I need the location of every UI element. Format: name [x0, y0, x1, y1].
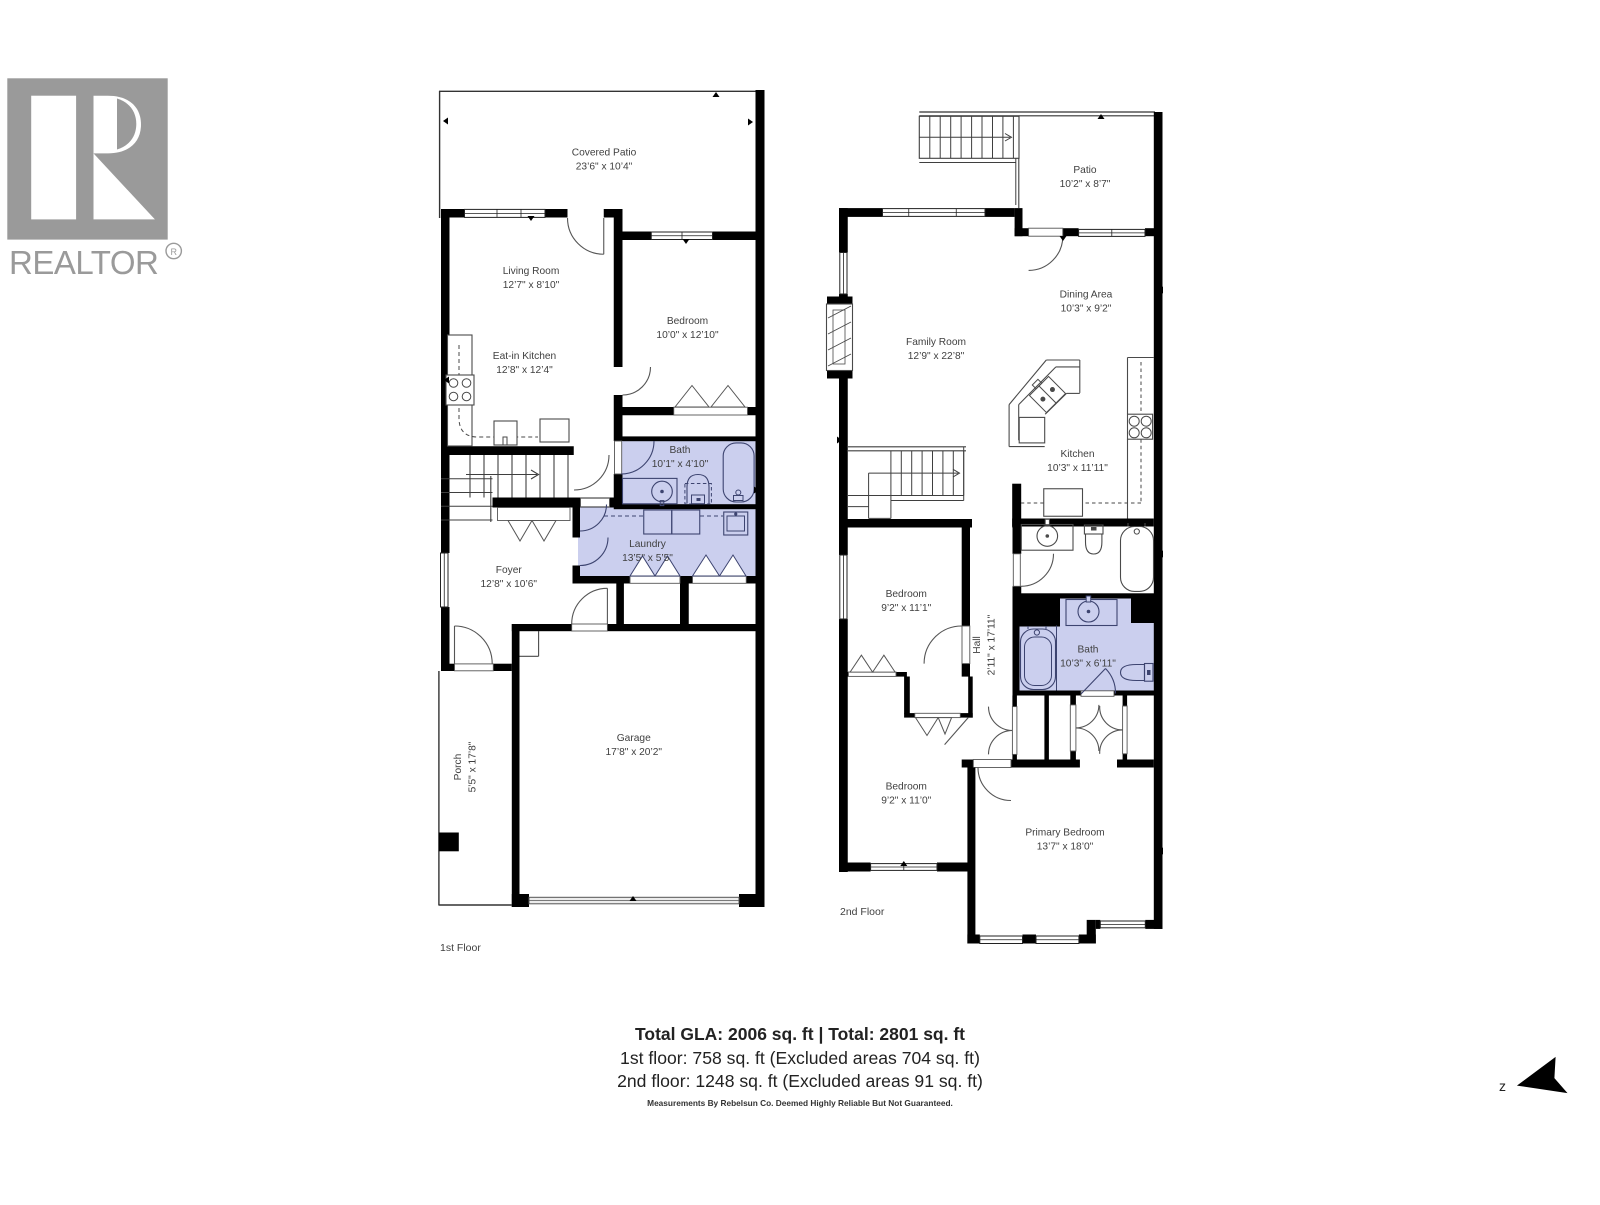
svg-text:2nd Floor: 2nd Floor: [840, 906, 885, 918]
svg-text:23’6" x 10’4": 23’6" x 10’4": [576, 161, 633, 172]
svg-text:2’11" x 17’11": 2’11" x 17’11": [987, 614, 998, 675]
svg-text:Family Room: Family Room: [906, 337, 966, 348]
svg-text:17’8" x 20’2": 17’8" x 20’2": [605, 747, 662, 758]
svg-text:10’2" x 8’7": 10’2" x 8’7": [1060, 179, 1111, 190]
svg-text:9’2" x 11’1": 9’2" x 11’1": [881, 603, 931, 614]
svg-text:10’3" x 9’2": 10’3" x 9’2": [1061, 303, 1112, 314]
svg-text:REALTOR: REALTOR: [9, 244, 158, 281]
svg-text:Eat-in Kitchen: Eat-in Kitchen: [493, 351, 556, 362]
svg-text:10’0" x 12’10": 10’0" x 12’10": [656, 330, 719, 341]
svg-text:Kitchen: Kitchen: [1061, 449, 1095, 460]
svg-text:10’3" x 11’11": 10’3" x 11’11": [1047, 463, 1108, 474]
svg-text:12’8" x 10’6": 12’8" x 10’6": [480, 579, 537, 590]
svg-text:Garage: Garage: [617, 733, 651, 744]
svg-text:Bedroom: Bedroom: [886, 589, 927, 600]
svg-text:9’2" x 11’0": 9’2" x 11’0": [881, 795, 931, 806]
svg-text:Living Room: Living Room: [503, 266, 560, 277]
svg-text:Foyer: Foyer: [496, 565, 523, 576]
svg-text:10’1" x 4’10": 10’1" x 4’10": [652, 459, 709, 470]
svg-text:z: z: [1499, 1078, 1506, 1094]
svg-text:Measurements By Rebelsun Co. D: Measurements By Rebelsun Co. Deemed High…: [647, 1098, 953, 1108]
svg-text:Hall: Hall: [972, 636, 983, 654]
svg-text:13’5" x 5’5": 13’5" x 5’5": [622, 553, 673, 564]
svg-text:5’5" x 17’8": 5’5" x 17’8": [468, 741, 479, 792]
svg-text:12’8" x 12’4": 12’8" x 12’4": [496, 365, 553, 376]
svg-text:Bedroom: Bedroom: [886, 782, 927, 793]
svg-text:Porch: Porch: [453, 754, 464, 781]
svg-text:Bedroom: Bedroom: [667, 316, 708, 327]
svg-text:1st floor: 758 sq. ft (Exclude: 1st floor: 758 sq. ft (Excluded areas 70…: [620, 1048, 980, 1068]
svg-text:Patio: Patio: [1073, 165, 1097, 176]
svg-text:Bath: Bath: [1078, 645, 1099, 656]
svg-text:2nd floor: 1248 sq. ft (Exclud: 2nd floor: 1248 sq. ft (Excluded areas 9…: [617, 1071, 983, 1091]
svg-text:Covered Patio: Covered Patio: [572, 148, 637, 159]
svg-text:R: R: [170, 247, 177, 257]
svg-text:Bath: Bath: [670, 445, 691, 456]
svg-text:Total GLA: 2006 sq. ft | Total: Total GLA: 2006 sq. ft | Total: 2801 sq.…: [635, 1024, 965, 1044]
svg-text:13’7" x 18’0": 13’7" x 18’0": [1037, 841, 1094, 852]
svg-text:10’3" x 6’11": 10’3" x 6’11": [1060, 658, 1116, 669]
svg-text:12’7" x 8’10": 12’7" x 8’10": [503, 280, 560, 291]
svg-text:Dining Area: Dining Area: [1060, 290, 1113, 301]
svg-text:Primary Bedroom: Primary Bedroom: [1025, 828, 1104, 839]
svg-text:1st Floor: 1st Floor: [440, 942, 481, 954]
svg-text:12’9" x 22’8": 12’9" x 22’8": [908, 351, 965, 362]
svg-text:Laundry: Laundry: [629, 539, 667, 550]
